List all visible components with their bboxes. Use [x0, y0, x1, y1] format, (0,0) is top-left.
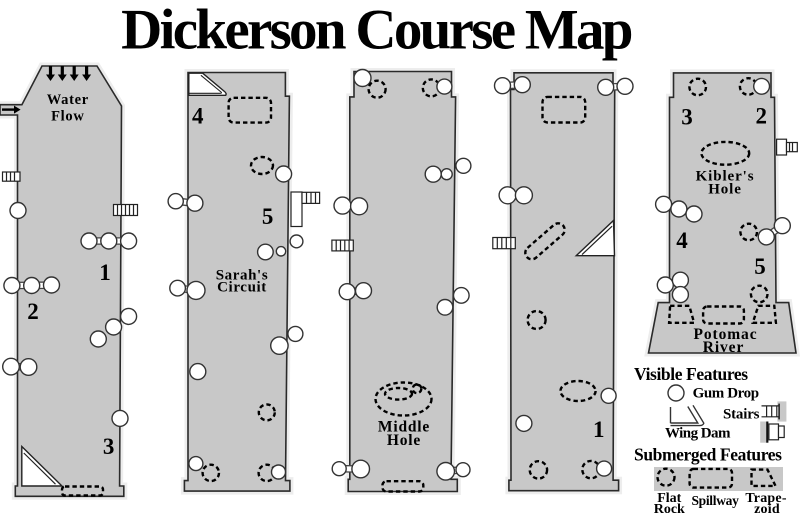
- svg-text:Hole: Hole: [387, 432, 421, 449]
- svg-text:Flow: Flow: [51, 109, 84, 125]
- svg-text:Rock: Rock: [654, 502, 685, 517]
- svg-text:Visible Features: Visible Features: [634, 364, 748, 384]
- svg-text:3: 3: [103, 434, 115, 459]
- svg-text:5: 5: [754, 254, 766, 279]
- svg-text:2: 2: [755, 104, 767, 129]
- svg-text:Gum Drop: Gum Drop: [693, 386, 759, 402]
- svg-text:zoid: zoid: [754, 502, 780, 517]
- svg-text:1: 1: [99, 260, 111, 285]
- svg-text:Stairs: Stairs: [723, 407, 760, 423]
- svg-text:Dickerson Course Map: Dickerson Course Map: [121, 0, 632, 62]
- svg-text:Water: Water: [47, 92, 89, 108]
- svg-text:4: 4: [192, 104, 204, 129]
- svg-text:5: 5: [262, 204, 274, 229]
- svg-text:Submerged Features: Submerged Features: [634, 445, 782, 465]
- svg-text:1: 1: [593, 417, 605, 442]
- svg-text:4: 4: [676, 228, 688, 253]
- svg-text:Spillway: Spillway: [691, 493, 739, 508]
- svg-text:3: 3: [681, 104, 693, 129]
- svg-text:2: 2: [27, 299, 39, 324]
- svg-text:Circuit: Circuit: [217, 280, 267, 296]
- svg-text:River: River: [703, 339, 745, 356]
- svg-text:Wing Dam: Wing Dam: [665, 426, 731, 442]
- svg-text:Hole: Hole: [708, 182, 742, 198]
